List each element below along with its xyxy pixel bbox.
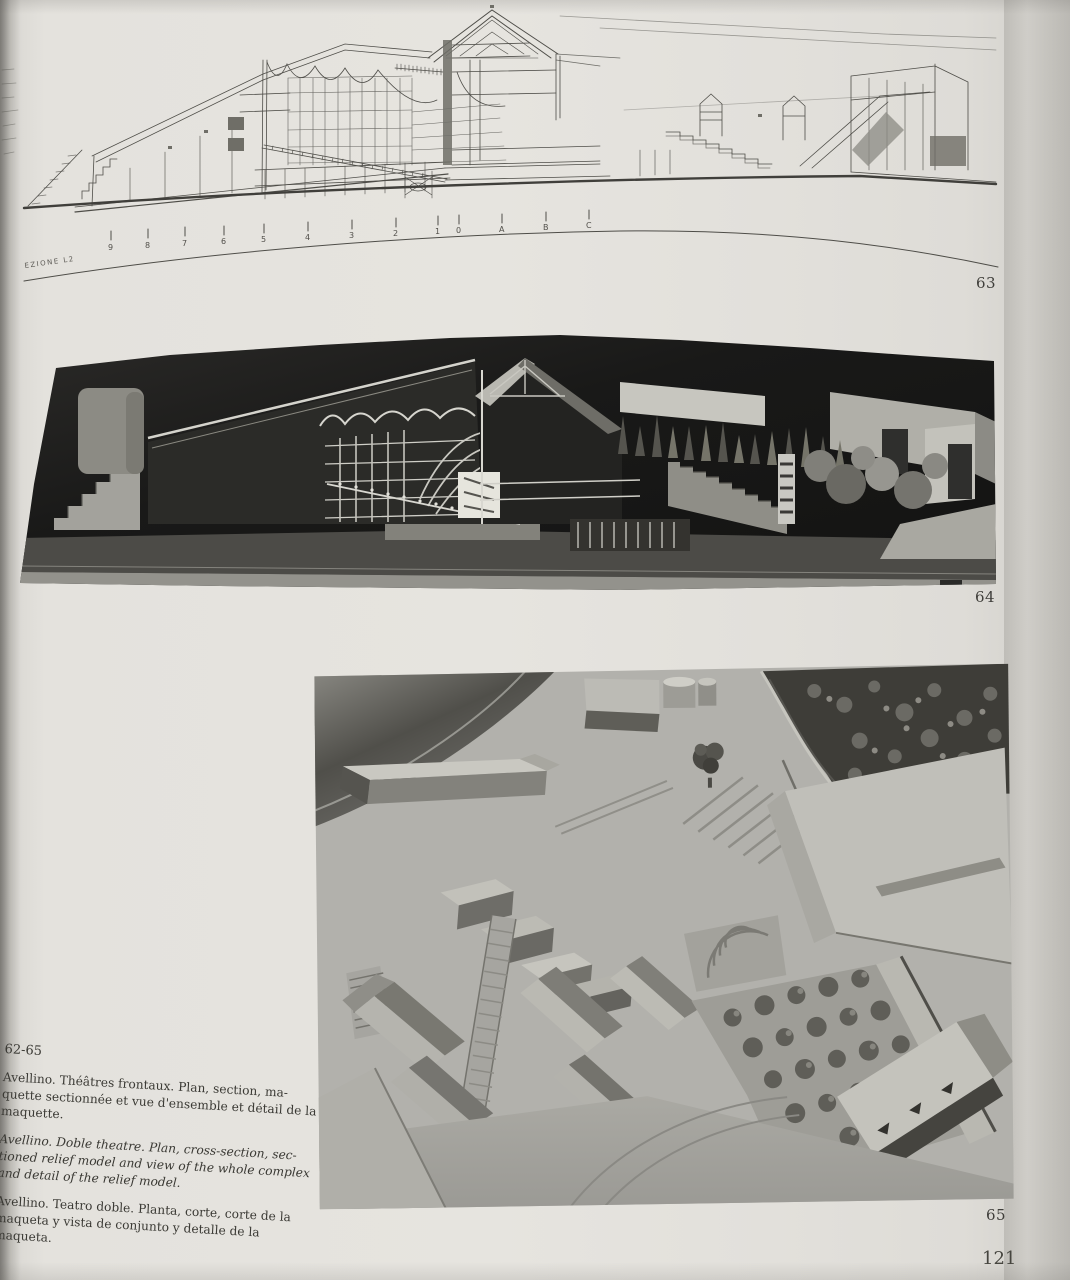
scale-tick-label: 5 — [261, 235, 266, 244]
figure-63-label: 63 — [976, 274, 996, 292]
drawing-hill-shade — [852, 112, 904, 166]
caption-spanish: Avellino. Teatro doble. Planta, corte, c… — [0, 1193, 316, 1262]
scale-tick-label: 6 — [221, 237, 226, 246]
drawing-fly-tower — [428, 10, 620, 180]
drawing-hill-right-building — [800, 64, 996, 182]
drawing-amphitheatre — [640, 94, 805, 176]
section-drawing-svg — [0, 0, 1070, 310]
scale-tick-label: 2 — [393, 229, 398, 238]
scale-tick-label: A — [499, 225, 504, 234]
scale-tick-label: 3 — [349, 231, 354, 240]
scale-tick-label: C — [586, 221, 592, 230]
drawing-ground-cut — [24, 176, 996, 208]
model-photo-64-svg — [20, 334, 996, 591]
scale-tick-label: 8 — [145, 241, 150, 250]
scale-tick-label: 1 — [435, 227, 440, 236]
figure-64-label: 64 — [975, 588, 995, 606]
figure-65-label: 65 — [986, 1206, 1006, 1224]
scale-tick-label: 7 — [182, 239, 187, 248]
model-photo-64 — [20, 334, 996, 591]
caption-french: Avellino. Théâtres frontaux. Plan, secti… — [1, 1069, 323, 1138]
page-edge-shadow-bottom — [0, 1262, 1070, 1280]
model-photo-65 — [314, 664, 1014, 1210]
page-number: 121 — [982, 1248, 1016, 1269]
scale-tick-label: 4 — [305, 233, 310, 242]
scale-tick-label: 9 — [108, 243, 113, 252]
caption-block: 62-65 Avellino. Théâtres frontaux. Plan,… — [0, 1041, 325, 1273]
caption-range: 62-65 — [4, 1041, 324, 1076]
drawing-canopy — [267, 62, 505, 106]
caption-english: Avellino. Doble theatre. Plan, cross-sec… — [0, 1131, 319, 1200]
section-drawing-figure-63: 9 8 7 6 5 4 3 2 1 0 A B C EZIONE L2 — [0, 0, 1070, 310]
scale-tick-label: B — [543, 223, 549, 232]
drawing-baseline — [24, 231, 998, 281]
book-page: { "figures": { "fig63": "63", "fig64": "… — [0, 0, 1070, 1280]
drawing-left-fragments — [2, 69, 18, 154]
scale-tick-label: 0 — [456, 226, 461, 235]
drawing-perspective-lines — [560, 16, 996, 110]
model-photo-65-svg — [314, 664, 1014, 1210]
